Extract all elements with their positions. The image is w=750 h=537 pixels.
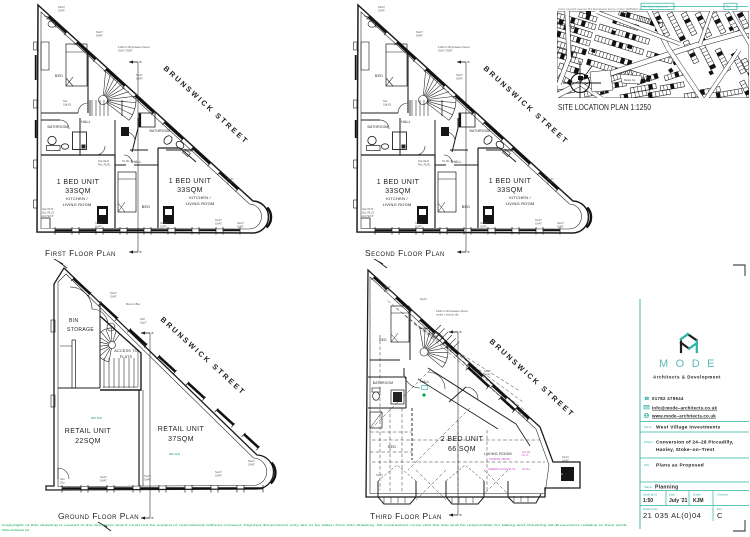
svg-text:1 BED UNIT: 1 BED UNIT xyxy=(57,179,100,186)
svg-text:Scale @A1: Scale @A1 xyxy=(643,493,657,497)
svg-text:SLAYSVAT: SLAYSVAT xyxy=(480,221,487,228)
svg-text:Rev | Date | Comments: Rev | Date | Comments xyxy=(643,6,669,9)
svg-text:BED: BED xyxy=(142,205,150,209)
svg-text:SLAYSVAT: SLAYSVAT xyxy=(96,30,103,37)
svg-text:SLAYSVAT: SLAYSVAT xyxy=(416,30,423,37)
svg-text:SLAY: SLAY xyxy=(420,297,427,301)
svg-text:1:50: 1:50 xyxy=(643,498,653,504)
svg-text:20A XLR: 20A XLR xyxy=(91,416,102,420)
svg-text:SLAYSVAT: SLAYSVAT xyxy=(160,221,167,228)
svg-text:33SQM: 33SQM xyxy=(177,187,203,194)
svg-text:SLAYSVAT: SLAYSVAT xyxy=(378,5,385,12)
svg-text:BED: BED xyxy=(379,338,387,342)
svg-text:BATHROOM: BATHROOM xyxy=(470,129,491,133)
svg-text:1 BED UNIT: 1 BED UNIT xyxy=(377,179,420,186)
svg-text:SxL RUTSxL RL212x0 SUIT: SxL RUTSxL RL212x0 SUIT xyxy=(42,207,55,218)
svg-text:SL RL SL: SL RL SL xyxy=(442,159,454,163)
svg-text:Fixture: Fixture xyxy=(183,149,192,153)
svg-text:Second Floor Plan: Second Floor Plan xyxy=(365,248,445,258)
svg-text:22SQM: 22SQM xyxy=(75,438,101,445)
svg-text:SLAYSVAT: SLAYSVAT xyxy=(58,5,65,12)
svg-text:Ground Floor Plan: Ground Floor Plan xyxy=(58,511,139,521)
svg-text:B: B xyxy=(460,330,462,334)
svg-text:1 BED UNIT: 1 BED UNIT xyxy=(489,178,532,185)
svg-text:KITCHEN /: KITCHEN / xyxy=(66,196,88,201)
svg-text:HALL: HALL xyxy=(81,120,91,124)
svg-text:SLxSLy: SLxSLy xyxy=(60,477,65,484)
svg-text:Client: Client xyxy=(644,425,651,429)
svg-text:SLAY: SLAY xyxy=(376,473,383,477)
svg-text:SLAYSVAT: SLAYSVAT xyxy=(215,470,222,477)
svg-text:LIVING ROOM: LIVING ROOM xyxy=(383,202,412,207)
svg-text:Crown copyright reserved. Plot: Crown copyright reserved. Plot Reproduce… xyxy=(558,8,642,11)
svg-text:STORAGE: STORAGE xyxy=(67,327,94,333)
svg-text:Fixture: Fixture xyxy=(503,149,512,153)
svg-text:Conversion of 24–28 Piccadi: Conversion of 24–28 Piccadilly, xyxy=(656,440,734,446)
svg-text:SLAYSVAT: SLAYSVAT xyxy=(237,221,244,228)
svg-text:SLAYSVAT: SLAYSVAT xyxy=(484,369,491,376)
svg-text:LIVING ROOM: LIVING ROOM xyxy=(506,201,535,206)
svg-text:RETAIL UNIT: RETAIL UNIT xyxy=(65,428,112,435)
svg-text:Date: Date xyxy=(669,493,675,497)
svg-text:Copyright of this drawing is v: Copyright of this drawing is vested in t… xyxy=(2,523,628,527)
svg-text:SLAYSVAT: SLAYSVAT xyxy=(136,73,143,80)
svg-text:BED: BED xyxy=(388,445,396,449)
svg-text:B: B xyxy=(468,60,470,64)
svg-text:B: B xyxy=(140,60,142,64)
svg-text:SLAYSVAT: SLAYSVAT xyxy=(227,177,234,184)
svg-text:Planning: Planning xyxy=(655,485,679,491)
svg-text:West Village Investments: West Village Investments xyxy=(656,425,721,431)
svg-text:SUNPIPE ABOVE: SUNPIPE ABOVE xyxy=(489,457,510,461)
svg-text:B: B xyxy=(468,250,470,254)
svg-text:LIVING ROOM: LIVING ROOM xyxy=(484,452,512,456)
svg-text:SLAYSVAT: SLAYSVAT xyxy=(557,221,564,228)
svg-text:Bxxxd xBxx: Bxxxd xBxx xyxy=(126,302,141,306)
svg-text:BED: BED xyxy=(375,74,383,78)
svg-text:Status: Status xyxy=(644,485,653,489)
svg-text:B: B xyxy=(460,513,462,517)
svg-text:KJM: KJM xyxy=(693,498,704,504)
svg-text:Title: Title xyxy=(644,463,650,467)
svg-text:LIVING ROOM: LIVING ROOM xyxy=(63,202,92,207)
svg-text:SLAYSVAT: SLAYSVAT xyxy=(430,331,437,338)
svg-text:SLAYSVAT: SLAYSVAT xyxy=(100,475,107,482)
svg-text:66 SQM: 66 SQM xyxy=(448,446,476,453)
svg-text:ACCESS TO: ACCESS TO xyxy=(114,349,138,353)
svg-text:info@mode–architects.co.uk: info@mode–architects.co.uk xyxy=(652,406,717,411)
svg-text:BIN: BIN xyxy=(69,318,79,324)
svg-text:SLAYSVAT: SLAYSVAT xyxy=(415,221,422,228)
svg-text:www.mode–architects.co.uk: www.mode–architects.co.uk xyxy=(651,414,716,419)
svg-text:KITCHEN /: KITCHEN / xyxy=(189,195,211,200)
svg-text:FLATS: FLATS xyxy=(120,355,133,359)
svg-text:BATHROOM: BATHROOM xyxy=(150,129,171,133)
svg-text:BATHROOM: BATHROOM xyxy=(48,125,69,129)
svg-text:LIVING ROOM: LIVING ROOM xyxy=(186,201,215,206)
svg-text:B: B xyxy=(152,331,154,335)
svg-text:33SQM: 33SQM xyxy=(497,187,523,194)
svg-text:SLAYSVAT: SLAYSVAT xyxy=(110,291,117,298)
svg-text:SL RL SL: SL RL SL xyxy=(122,159,134,163)
svg-text:1 BED UNIT: 1 BED UNIT xyxy=(169,178,212,185)
svg-text:Market Sq: Market Sq xyxy=(624,79,636,82)
svg-text:SxL RUTSxL RL212x0 SUIT: SxL RUTSxL RL212x0 SUIT xyxy=(362,207,375,218)
svg-text:33SQM: 33SQM xyxy=(65,188,91,195)
svg-text:SLAYSVAT: SLAYSVAT xyxy=(547,177,554,184)
svg-text:KITCHEN /: KITCHEN / xyxy=(386,196,408,201)
svg-text:SLAYSVAT: SLAYSVAT xyxy=(95,221,102,228)
svg-text:33SQM: 33SQM xyxy=(385,188,411,195)
svg-text:B: B xyxy=(152,516,154,520)
svg-text:HALL: HALL xyxy=(401,120,411,124)
svg-text:SHEERS ALGSA RL SL: SHEERS ALGSA RL SL xyxy=(488,467,516,471)
svg-text:Third Floor Plan: Third Floor Plan xyxy=(370,511,442,521)
svg-text:Architects & Development: Architects & Development xyxy=(653,375,721,380)
svg-text:Checked: Checked xyxy=(717,493,728,497)
svg-text:Drawn: Drawn xyxy=(693,493,702,497)
svg-text:SLAYSVAT: SLAYSVAT xyxy=(562,455,569,462)
svg-text:SL: SL xyxy=(560,472,564,476)
svg-text:BATHROOM: BATHROOM xyxy=(368,125,389,129)
svg-text:RETAIL UNIT: RETAIL UNIT xyxy=(158,426,205,433)
svg-text:Mode Architects Ltd: Mode Architects Ltd xyxy=(2,528,29,532)
svg-text:21 035 AL(0)04: 21 035 AL(0)04 xyxy=(643,511,701,520)
svg-text:First Floor Plan: First Floor Plan xyxy=(45,248,116,258)
svg-text:RL SLx: RL SLx xyxy=(522,467,531,471)
svg-text:Hanley, Stoke–on–Trent: Hanley, Stoke–on–Trent xyxy=(656,447,715,453)
svg-text:KITCHEN /: KITCHEN / xyxy=(509,195,531,200)
svg-text:BATHROOM: BATHROOM xyxy=(373,381,393,385)
svg-text:SLAYSVAT: SLAYSVAT xyxy=(215,218,222,225)
svg-text:20A XLR: 20A XLR xyxy=(169,452,180,456)
svg-text:SLAYSVAT: SLAYSVAT xyxy=(248,459,255,466)
svg-text:SLAYSVAT: SLAYSVAT xyxy=(535,218,542,225)
svg-text:July ’21: July ’21 xyxy=(669,498,688,504)
svg-text:BED: BED xyxy=(55,74,63,78)
svg-text:Project: Project xyxy=(644,440,653,444)
svg-text:SLAYSVAT: SLAYSVAT xyxy=(456,73,463,80)
svg-text:MODE: MODE xyxy=(659,358,722,370)
svg-text:01782 479644: 01782 479644 xyxy=(652,396,684,401)
svg-text:37SQM: 37SQM xyxy=(168,436,194,443)
svg-text:SLAYSVAT: SLAYSVAT xyxy=(384,285,391,292)
svg-text:SITE LOCATION PLAN 1:1250: SITE LOCATION PLAN 1:1250 xyxy=(558,102,651,112)
svg-text:B: B xyxy=(140,250,142,254)
svg-text:☎: ☎ xyxy=(644,396,650,401)
svg-text:C: C xyxy=(717,511,723,520)
svg-text:2 BED UNIT: 2 BED UNIT xyxy=(441,436,484,443)
svg-text:Plans as Proposed: Plans as Proposed xyxy=(656,463,704,469)
